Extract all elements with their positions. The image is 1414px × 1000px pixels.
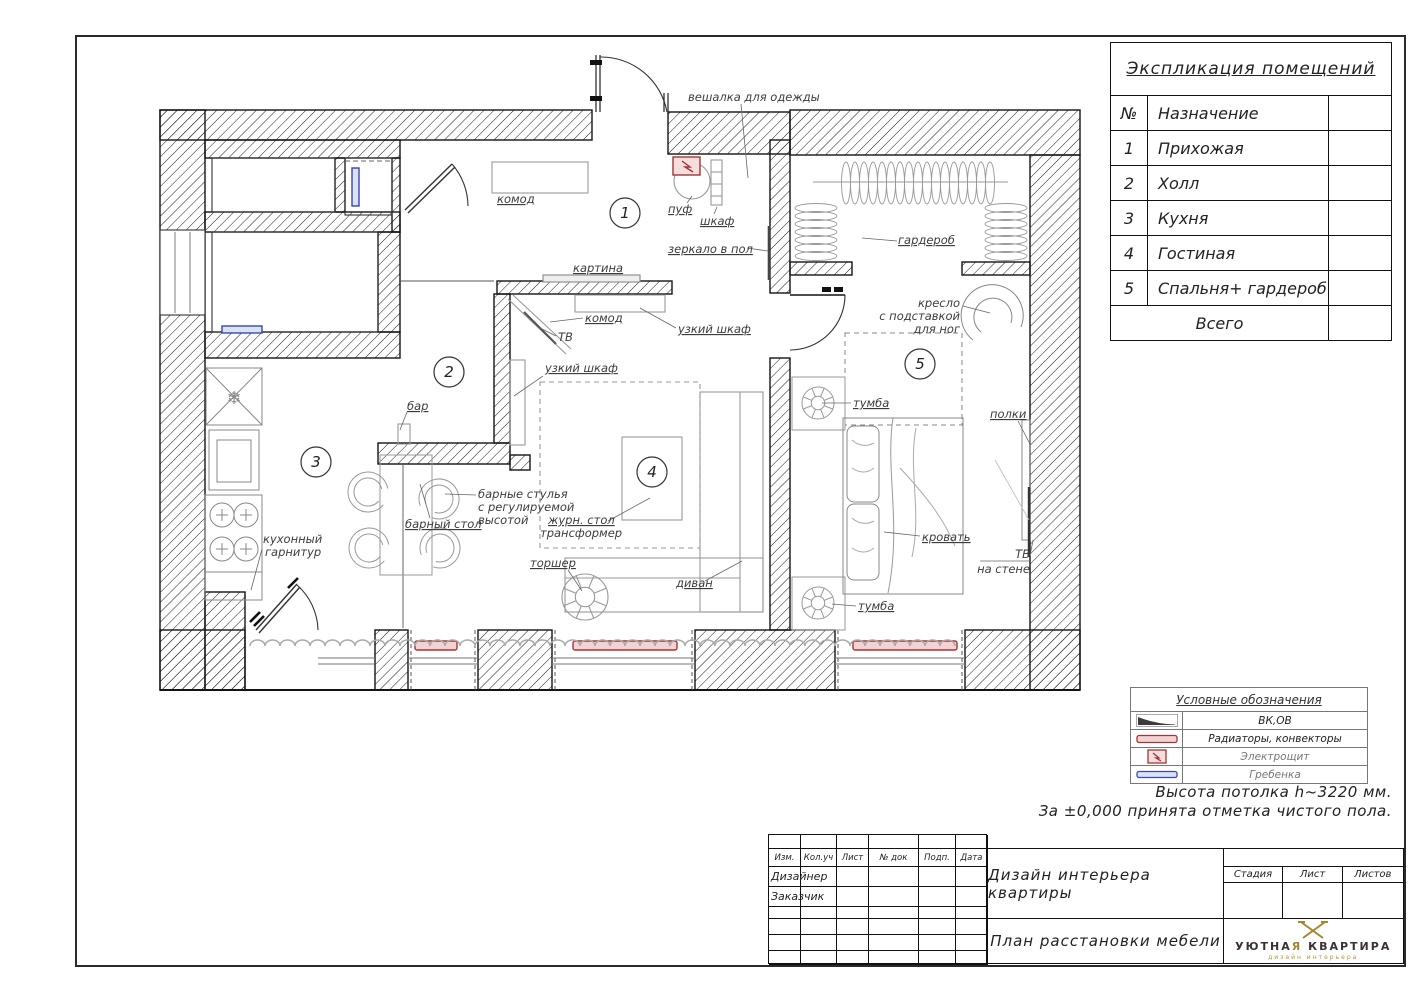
titleblock-cell: № док xyxy=(869,849,919,867)
titleblock-cell xyxy=(769,835,801,849)
titleblock-cell xyxy=(919,907,956,919)
bedroom xyxy=(792,285,1030,630)
label-kreslo3: для ног xyxy=(913,322,961,336)
label-krovat: кровать xyxy=(922,530,971,544)
total-label: Всего xyxy=(1111,306,1328,340)
electro-panel xyxy=(673,157,700,175)
titleblock-cell xyxy=(919,919,956,935)
label-uzkiy2: узкий шкаф xyxy=(544,361,618,375)
stage-value-cell xyxy=(1223,882,1284,919)
label-zhurn1: журн. стол xyxy=(547,513,615,527)
electro-panel-icon xyxy=(1131,748,1183,765)
legend-row: Гребенка xyxy=(1131,765,1367,783)
label-stulya3: высотой xyxy=(478,513,529,527)
label-uzkiy1: узкий шкаф xyxy=(677,322,751,336)
picture xyxy=(543,275,640,282)
label-divan: диван xyxy=(675,576,713,590)
sheet-value-cell xyxy=(1282,882,1343,919)
col-header-name: Назначение xyxy=(1148,96,1328,130)
nightstand-bottom xyxy=(792,577,845,630)
floor-lamp xyxy=(562,574,608,620)
titleblock-cell xyxy=(869,935,919,951)
label-komod1: комод xyxy=(497,192,535,206)
titleblock-cell xyxy=(837,887,869,907)
room-number-1: 1 xyxy=(620,204,630,222)
sheet-header: Лист xyxy=(1282,866,1343,884)
vent-wedge-icon xyxy=(1131,712,1183,729)
burners xyxy=(210,503,258,561)
stage-header: Стадия xyxy=(1223,866,1284,884)
label-stulya2: с регулируемой xyxy=(478,500,575,514)
total-row: Всего xyxy=(1111,305,1391,340)
titleblock-cell xyxy=(956,951,988,965)
titleblock-cell xyxy=(869,907,919,919)
sheet-title: План расстановки мебели xyxy=(990,932,1221,950)
label-kuh2: гарнитур xyxy=(265,545,321,559)
project-title: Дизайн интерьера квартиры xyxy=(988,866,1223,902)
titleblock-cell xyxy=(837,935,869,951)
room-number-5: 5 xyxy=(915,355,925,373)
label-zhurn2: трансформер xyxy=(540,526,622,540)
titleblock-cell xyxy=(869,951,919,965)
explication-title: Экспликация помещений xyxy=(1111,43,1391,95)
titleblock-cell xyxy=(801,919,837,935)
company-logo: УЮТНАЯ КВАРТИРА дизайн интерьера xyxy=(1223,918,1405,965)
titleblock-cell xyxy=(837,907,869,919)
hall-furniture xyxy=(398,295,665,445)
titleblock-cell xyxy=(869,887,919,907)
titleblock-cell xyxy=(837,835,869,849)
windows xyxy=(160,630,1080,690)
titleblock-cell xyxy=(956,935,988,951)
titleblock-cell xyxy=(801,935,837,951)
room-number-2: 2 xyxy=(444,363,454,381)
room-number-4: 4 xyxy=(647,463,657,481)
wardrobe-narrow xyxy=(711,160,722,205)
label-tvwall2: на стене xyxy=(977,562,1030,576)
bed xyxy=(843,418,963,594)
label-tvwall1: ТВ xyxy=(1015,547,1030,561)
table-row: 4 Гостиная xyxy=(1111,235,1391,270)
table-row: 3 Кухня xyxy=(1111,200,1391,235)
snowflake-icon: ❄ xyxy=(226,388,241,409)
note-line1: Высота потолка h~3220 мм. xyxy=(970,783,1392,802)
nightstand-top xyxy=(792,377,845,430)
titleblock-cell xyxy=(801,835,837,849)
label-kartina: картина xyxy=(573,261,623,275)
label-tv: ТВ xyxy=(558,330,573,344)
sheet-title-cell: План расстановки мебели xyxy=(987,918,1224,965)
titleblock-cell xyxy=(801,907,837,919)
titleblock-cell xyxy=(769,907,801,919)
titleblock-cell xyxy=(837,867,869,887)
titleblock-cell xyxy=(769,919,801,935)
legend-title: Условные обозначения xyxy=(1131,688,1367,711)
label-komod2: комод xyxy=(585,311,623,325)
label-barstol: барный стол xyxy=(405,517,482,531)
label-kreslo1: кресло xyxy=(918,296,960,310)
label-zerkalo: зеркало в пол xyxy=(668,242,754,256)
label-tumba2: тумба xyxy=(858,599,894,613)
titleblock-cell xyxy=(919,935,956,951)
logo-text: УЮТНАЯ КВАРТИРА xyxy=(1235,940,1391,953)
comb-blue-bar xyxy=(352,168,359,206)
titleblock-cell xyxy=(956,919,988,935)
titleblock-cell xyxy=(769,951,801,965)
titleblock-cell: Дата xyxy=(956,849,988,867)
label-kreslo2: с подставкой xyxy=(879,309,960,323)
titleblock-cell xyxy=(801,887,837,907)
legend-row: Электрощит xyxy=(1131,747,1367,765)
comb-blue-bar xyxy=(222,326,262,333)
label-tumba1: тумба xyxy=(853,396,889,410)
titleblock-cell xyxy=(869,835,919,849)
titleblock-cell: Заказчик xyxy=(769,887,801,907)
label-polki: полки xyxy=(990,407,1027,421)
titleblock-cell: Дизайнер xyxy=(769,867,801,887)
titleblock-cell: Изм. xyxy=(769,849,801,867)
label-veshalka: вешалка для одежды xyxy=(688,90,820,104)
radiator-icon xyxy=(1131,730,1183,747)
label-garderob: гардероб xyxy=(898,233,955,247)
titleblock-empty-cell xyxy=(1223,848,1405,867)
project-title-cell: Дизайн интерьера квартиры xyxy=(987,848,1224,919)
logo-monogram-icon xyxy=(1296,920,1330,940)
titleblock-cell xyxy=(919,867,956,887)
titleblock-cell: Подп. xyxy=(919,849,956,867)
table-row: 1 Прихожая xyxy=(1111,130,1391,165)
label-shkaf: шкаф xyxy=(700,214,735,228)
label-kuh1: кухонный xyxy=(263,532,323,546)
note-line2: За ±0,000 принята отметка чистого пола. xyxy=(970,802,1392,821)
titleblock-cell xyxy=(919,951,956,965)
armchair xyxy=(961,285,1023,340)
comb-icon xyxy=(1131,766,1183,783)
room-number-3: 3 xyxy=(311,453,321,471)
legend-table: Условные обозначения ВК,ОВ Радиаторы, ко… xyxy=(1130,687,1368,784)
drawing-sheet: ❄ xyxy=(0,0,1414,1000)
col-header-no: № xyxy=(1111,96,1148,130)
titleblock-cell xyxy=(869,919,919,935)
titleblock-cell xyxy=(801,951,837,965)
bar-shelf xyxy=(398,424,410,444)
rug xyxy=(845,333,962,425)
room-explication-table: Экспликация помещений № Назначение 1 При… xyxy=(1110,42,1392,341)
titleblock-cell xyxy=(837,919,869,935)
titleblock-cell xyxy=(837,951,869,965)
explication-header: № Назначение xyxy=(1111,95,1391,130)
label-bar: бар xyxy=(407,399,428,413)
logo-subtitle: дизайн интерьера xyxy=(1268,954,1358,961)
bar-table xyxy=(380,455,432,575)
legend-row: Радиаторы, конвекторы xyxy=(1131,729,1367,747)
sheets-header: Листов xyxy=(1342,866,1405,884)
table-row: 2 Холл xyxy=(1111,165,1391,200)
titleblock-cell: Кол.уч xyxy=(801,849,837,867)
titleblock-cell xyxy=(769,935,801,951)
label-puf: пуф xyxy=(668,202,692,216)
pillow xyxy=(847,504,879,580)
titleblock-cell xyxy=(919,835,956,849)
titleblock-cell xyxy=(919,887,956,907)
titleblock-cell xyxy=(956,907,988,919)
pillow xyxy=(847,426,879,502)
titleblock-cell: Лист xyxy=(837,849,869,867)
titleblock-revision-grid: Изм.Кол.учЛист№ докПодп.ДатаДизайнерЗака… xyxy=(768,834,987,964)
legend-row: ВК,ОВ xyxy=(1131,711,1367,729)
titleblock-cell xyxy=(956,887,988,907)
titleblock-cell xyxy=(956,835,988,849)
label-stulya1: барные стулья xyxy=(478,487,568,501)
table-row: 5 Спальня+ гардероб xyxy=(1111,270,1391,305)
sheets-value-cell xyxy=(1342,882,1405,919)
ceiling-notes: Высота потолка h~3220 мм. За ±0,000 прин… xyxy=(970,783,1392,821)
titleblock-cell xyxy=(869,867,919,887)
titleblock-cell xyxy=(956,867,988,887)
titleblock-cell xyxy=(801,867,837,887)
label-torsher: торшер xyxy=(530,556,576,570)
